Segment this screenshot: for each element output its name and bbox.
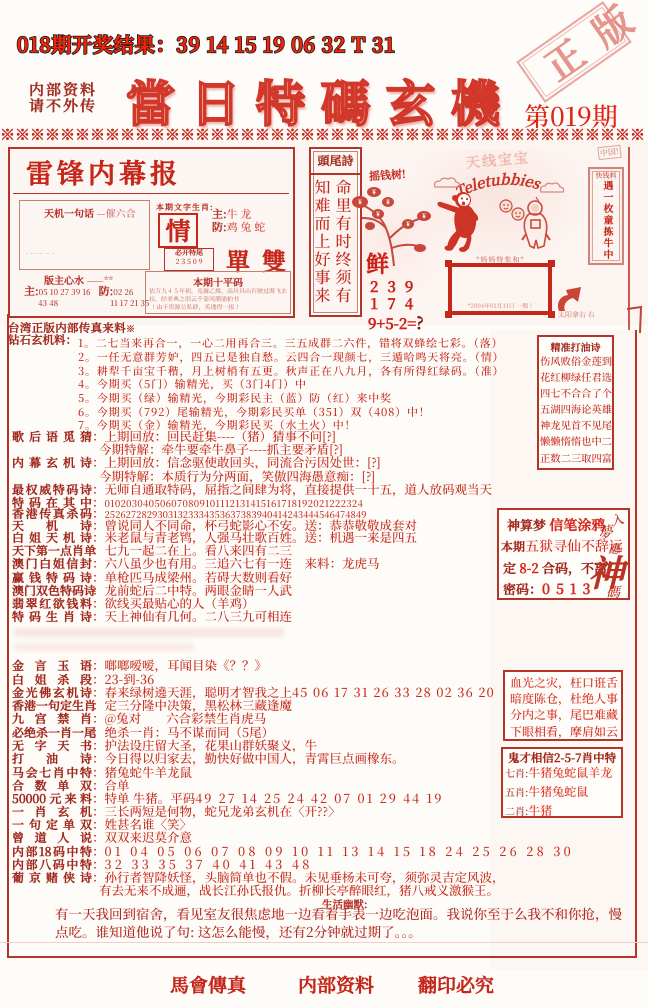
svg-text:¥: ¥ bbox=[385, 197, 390, 206]
svg-text:¥: ¥ bbox=[371, 187, 376, 196]
svg-text:¥: ¥ bbox=[421, 211, 426, 220]
svg-text:¥: ¥ bbox=[405, 219, 410, 228]
svg-text:¥: ¥ bbox=[357, 197, 362, 206]
svg-text:¥: ¥ bbox=[375, 209, 380, 218]
